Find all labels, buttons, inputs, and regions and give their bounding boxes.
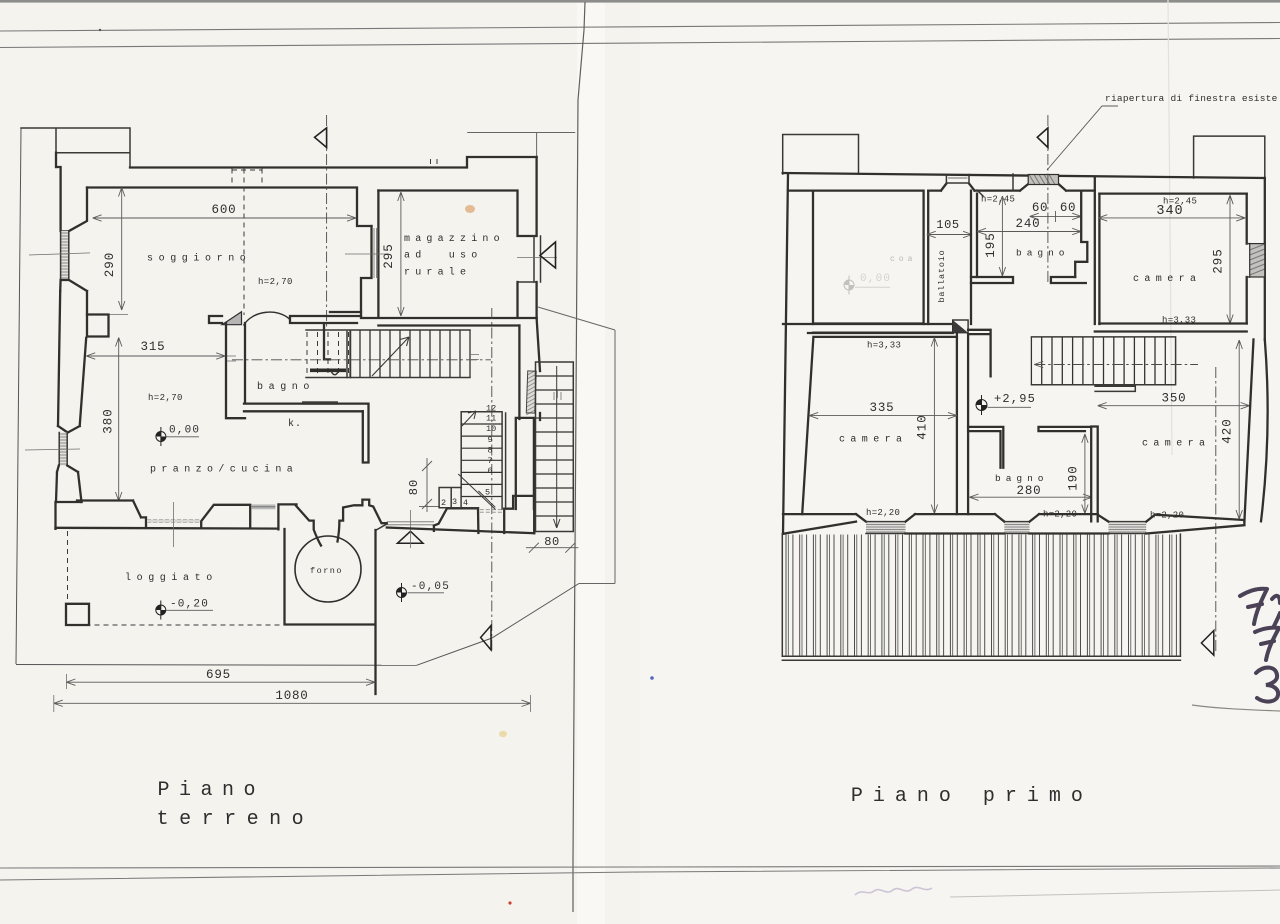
svg-text:290: 290	[103, 252, 117, 278]
svg-text:pranzo/cucina: pranzo/cucina	[150, 464, 298, 476]
svg-text:2: 2	[441, 498, 446, 508]
svg-text:bagno: bagno	[257, 381, 315, 393]
svg-text:forno: forno	[310, 566, 343, 576]
svg-text:6: 6	[488, 466, 493, 476]
svg-text:410: 410	[916, 414, 930, 440]
svg-text:8: 8	[488, 446, 493, 456]
svg-text:-0,05: -0,05	[411, 581, 450, 593]
svg-text:695: 695	[206, 668, 231, 682]
svg-text:ad uso: ad uso	[404, 250, 482, 262]
svg-text:h=2,70: h=2,70	[148, 393, 183, 403]
svg-text:9: 9	[488, 435, 493, 445]
svg-text:magazzino: magazzino	[404, 233, 505, 245]
svg-text:camera: camera	[839, 435, 907, 446]
svg-text:bagno: bagno	[1016, 248, 1070, 259]
svg-text:Piano: Piano	[158, 779, 266, 802]
svg-text:11: 11	[486, 414, 496, 424]
svg-text:Piano primo: Piano primo	[851, 785, 1093, 808]
svg-text:7: 7	[488, 456, 493, 466]
svg-text:bagno: bagno	[995, 473, 1049, 484]
svg-text:380: 380	[102, 408, 116, 434]
svg-text:315: 315	[141, 340, 166, 354]
svg-text:80: 80	[544, 535, 559, 549]
svg-text:loggiato: loggiato	[125, 572, 218, 584]
svg-text:1080: 1080	[275, 689, 308, 703]
svg-text:420: 420	[1221, 418, 1235, 444]
svg-text:350: 350	[1162, 392, 1187, 406]
svg-text:195: 195	[984, 232, 998, 258]
svg-text:0,00: 0,00	[169, 425, 200, 437]
svg-text:5: 5	[485, 488, 490, 498]
svg-text:terreno: terreno	[157, 808, 315, 831]
svg-text:camera: camera	[1142, 439, 1210, 450]
svg-text:0,00: 0,00	[860, 273, 891, 285]
svg-text:-0,20: -0,20	[170, 599, 209, 611]
svg-text:335: 335	[870, 401, 895, 415]
svg-text:190: 190	[1067, 465, 1081, 491]
svg-text:h=2,45: h=2,45	[981, 195, 1015, 205]
svg-text:riapertura di finestra esiste: riapertura di finestra esiste	[1105, 93, 1278, 104]
svg-text:600: 600	[212, 203, 237, 217]
svg-text:60: 60	[1032, 201, 1048, 215]
svg-text:4: 4	[463, 498, 468, 508]
svg-text:12: 12	[486, 404, 496, 414]
svg-text:k.: k.	[288, 418, 302, 430]
svg-text:295: 295	[1212, 248, 1226, 274]
svg-text:camera: camera	[1133, 274, 1201, 285]
svg-text:h=2,20: h=2,20	[866, 508, 900, 518]
svg-text:105: 105	[936, 218, 959, 232]
svg-text:ballatoio: ballatoio	[937, 249, 947, 302]
svg-text:+2,95: +2,95	[994, 392, 1036, 406]
svg-text:280: 280	[1017, 484, 1042, 498]
svg-text:rurale: rurale	[404, 267, 471, 279]
svg-text:340: 340	[1156, 204, 1183, 219]
svg-text:10: 10	[486, 424, 496, 434]
svg-text:coa: coa	[890, 255, 916, 264]
svg-text:3: 3	[452, 497, 457, 507]
svg-text:80: 80	[407, 479, 421, 495]
svg-text:240: 240	[1016, 217, 1041, 231]
svg-text:60: 60	[1060, 201, 1076, 215]
svg-text:295: 295	[382, 243, 396, 269]
svg-text:h=3,33: h=3,33	[867, 341, 901, 351]
svg-text:soggiorno: soggiorno	[147, 253, 251, 265]
svg-text:h=2,70: h=2,70	[258, 277, 293, 287]
